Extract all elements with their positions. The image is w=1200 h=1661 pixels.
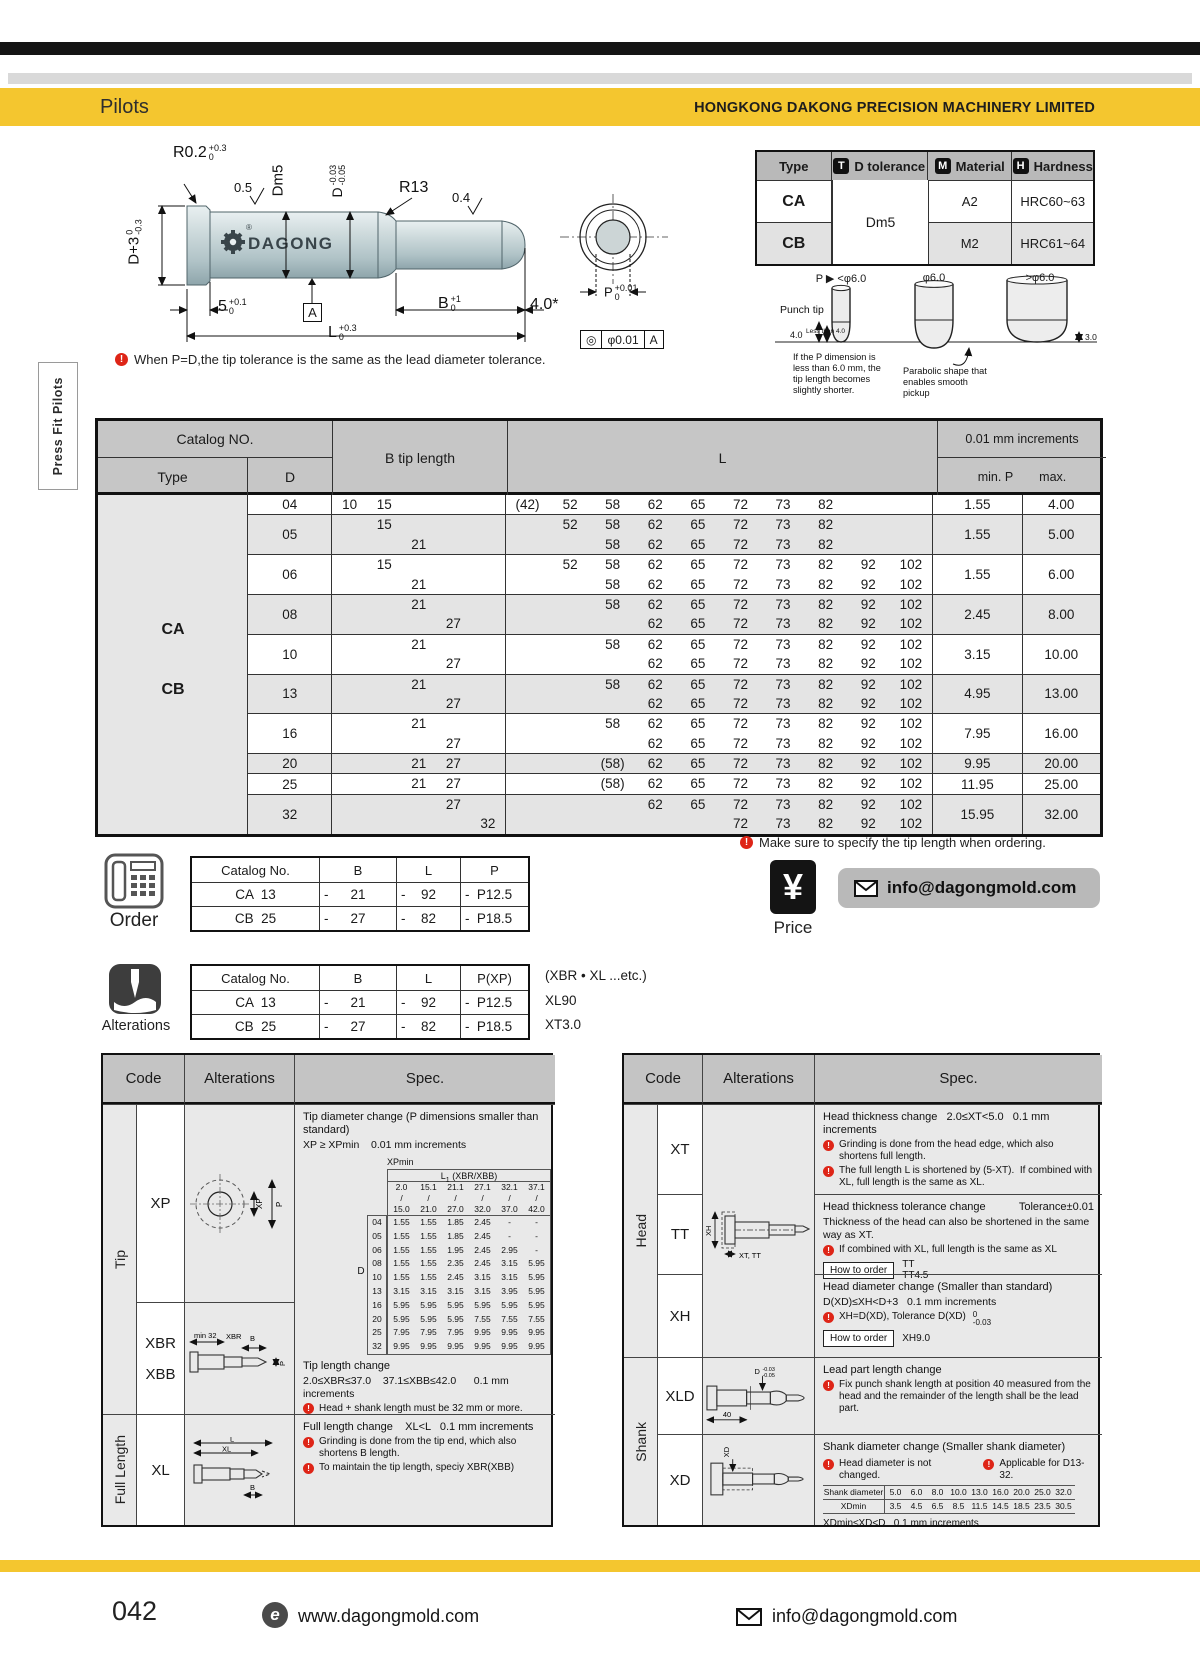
p-min-value: 2.45	[933, 595, 1022, 634]
l-value	[549, 814, 592, 833]
b-tip-lengths: 2127	[332, 774, 506, 793]
hardness-ca: HRC60~63	[1012, 181, 1093, 222]
l-value: 65	[677, 595, 720, 614]
l-value	[890, 495, 933, 514]
b-value	[332, 654, 367, 673]
b-value: 27	[436, 795, 471, 814]
l-value: 72	[719, 675, 762, 694]
l-value: 82	[804, 654, 847, 673]
b-value	[436, 535, 471, 554]
l-value	[506, 614, 549, 633]
xpmin-value: 9.95	[442, 1340, 469, 1354]
l-line: 58626572738292102	[506, 635, 932, 654]
l-value	[506, 694, 549, 713]
b-line: 32	[332, 814, 505, 833]
contact-email: info@dagongmold.com	[887, 878, 1076, 898]
l-value: 102	[890, 774, 933, 793]
l-value	[506, 714, 549, 733]
xpmin-value: 3.15	[442, 1285, 469, 1299]
b-value	[471, 535, 506, 554]
p-min-value: 9.95	[933, 754, 1022, 773]
p-max-value: 13.00	[1023, 675, 1100, 714]
b-value	[436, 635, 471, 654]
xpmin-value: 2.35	[442, 1257, 469, 1271]
l-value	[591, 795, 634, 814]
l-value: 102	[890, 814, 933, 833]
b-tip-lengths: 1015	[332, 495, 506, 514]
page-title: Pilots	[100, 96, 149, 119]
l-value: 58	[591, 515, 634, 534]
b-value	[332, 734, 367, 753]
punch-label-small: P ▶ <φ6.0	[816, 272, 867, 285]
range-slash: /	[427, 1193, 429, 1204]
xpmin-value: -	[523, 1216, 550, 1230]
b-value	[402, 555, 437, 574]
l-line: 58626572738292102	[506, 595, 932, 614]
xpmin-value: 1.55	[388, 1244, 415, 1258]
xpmin-value: 5.95	[388, 1313, 415, 1327]
b-value: 27	[436, 774, 471, 793]
b-value	[367, 614, 402, 633]
xpmin-range: 37.1/42.0	[523, 1182, 550, 1215]
tt-warning: If combined with XL, full length is the …	[823, 1244, 1094, 1256]
b-line: 2127	[332, 754, 505, 773]
xpmin-value: 7.55	[523, 1313, 550, 1327]
xp-diagram: XP P	[184, 1104, 294, 1302]
xd-value: 8.5	[948, 1500, 969, 1513]
b-line: 21	[332, 575, 505, 594]
pin-neck	[378, 212, 396, 278]
b-line: 27	[332, 694, 505, 713]
xpmin-value: 5.95	[496, 1299, 523, 1313]
l-value	[506, 555, 549, 574]
l-value: 62	[634, 555, 677, 574]
xpmin-value: 1.55	[388, 1257, 415, 1271]
l-value: 92	[847, 575, 890, 594]
xd-row-label: XDmin	[823, 1500, 885, 1513]
d-tolerance-header: TD tolerance	[832, 152, 928, 180]
d-value: 13	[248, 675, 332, 714]
b-line: 27	[332, 734, 505, 753]
registered-mark: ®	[246, 223, 252, 232]
b-value	[402, 515, 437, 534]
spec-header: Spec.	[814, 1055, 1102, 1104]
tip-length-order-note-text: Make sure to specify the tip length when…	[759, 835, 1046, 850]
l-value: 102	[890, 635, 933, 654]
l-value	[847, 515, 890, 534]
l-value: 92	[847, 795, 890, 814]
l-value: 73	[762, 714, 805, 733]
material-cb: M2	[928, 223, 1013, 264]
p-max-value: 10.00	[1023, 635, 1100, 674]
xpmin-value: 1.55	[415, 1230, 442, 1244]
drawing-note-text: When P=D,the tip tolerance is the same a…	[134, 352, 546, 367]
p-min-value: 3.15	[933, 635, 1022, 674]
l-value: 82	[804, 515, 847, 534]
b-value	[471, 495, 506, 514]
catalog-row-d06: 0615215258626572738292102586265727382921…	[248, 554, 1100, 594]
l-value: (58)	[591, 774, 634, 793]
tt-xh-label: XH	[705, 1226, 713, 1236]
l-value: 102	[890, 595, 933, 614]
p-min-value: 1.55	[933, 555, 1022, 594]
xpmin-row: 1.551.551.952.452.95-	[388, 1244, 550, 1258]
t-badge-icon: T	[833, 158, 849, 174]
alterations-example-2: XT3.0	[545, 1017, 581, 1032]
xd-rule: XDmin≤XD<D 0.1 mm increments	[823, 1517, 1094, 1530]
xl-diagram: L XL B	[184, 1414, 294, 1525]
l-value: 62	[634, 675, 677, 694]
l-value: 62	[634, 714, 677, 733]
increments-header: 0.01 mm increments	[938, 421, 1106, 458]
xpmin-id-column: 04050608101316202532	[367, 1215, 387, 1355]
l-value: 82	[804, 495, 847, 514]
l-value: 92	[847, 774, 890, 793]
b-value: 15	[367, 515, 402, 534]
l-value: 62	[634, 535, 677, 554]
xpmin-value: 9.95	[469, 1340, 496, 1354]
l-value: 65	[677, 754, 720, 773]
l-value: 73	[762, 614, 805, 633]
l-value: 102	[890, 675, 933, 694]
l-value	[506, 515, 549, 534]
order-b: 27	[350, 911, 365, 926]
range-slash: /	[481, 1193, 483, 1204]
xp-diagram-xp-label: XP	[255, 1198, 264, 1209]
l-value: 82	[804, 754, 847, 773]
p-min-value: 1.55	[933, 515, 1022, 554]
xpmin-row: 1.551.552.453.153.155.95	[388, 1271, 550, 1285]
xpmin-value: 9.95	[415, 1340, 442, 1354]
l-value: 92	[847, 614, 890, 633]
xpmin-value: 5.95	[442, 1313, 469, 1327]
p-min-value: 15.95	[933, 795, 1022, 834]
order-row-cb: CB 25 -27 -82 -P18.5	[192, 906, 528, 930]
hardness-cb: HRC61~64	[1012, 223, 1093, 264]
dim-p: P+0.010	[604, 284, 637, 302]
e-logo-icon: e	[262, 1602, 288, 1628]
p-max-value: 6.00	[1023, 555, 1100, 594]
b-tip-lengths: 1521	[332, 555, 506, 594]
b-value	[402, 694, 437, 713]
d-value: 25	[248, 774, 332, 793]
dim-d-plus-3: D+30-0.3	[126, 219, 144, 264]
l-value: (58)	[591, 754, 634, 773]
catalog-row-d32: 3227326265727382921027273829210215.9532.…	[248, 794, 1100, 834]
l-value: 62	[634, 795, 677, 814]
punch-dim-3: 3.0	[1085, 332, 1097, 343]
l-value	[549, 714, 592, 733]
l-line: 626572738292102	[506, 795, 932, 814]
order-example-table: Catalog No. B L P CA 13 -21 -92 -P12.5 C…	[190, 856, 530, 932]
l-value: 65	[677, 614, 720, 633]
xpmin-value: 5.95	[415, 1299, 442, 1313]
xd-value: 3.5	[885, 1500, 906, 1513]
b-value	[471, 714, 506, 733]
xpmin-row: 1.551.551.852.45--	[388, 1216, 550, 1230]
type-label-ca: CA	[98, 621, 248, 639]
b-value: 15	[367, 555, 402, 574]
dim-r02-base: R0.2	[173, 144, 207, 161]
d-value: 32	[248, 795, 332, 834]
p-max-value: 5.00	[1023, 515, 1100, 554]
l-value: 102	[890, 734, 933, 753]
b-line: 27	[332, 614, 505, 633]
xpmin-value: 1.55	[415, 1216, 442, 1230]
xpmin-value: 9.95	[496, 1340, 523, 1354]
dim-dm5: Dm5	[269, 165, 286, 197]
order-h-catalog: Catalog No.	[192, 858, 319, 882]
range-low: 32.1	[501, 1182, 518, 1193]
l-value: (42)	[506, 495, 549, 514]
xl-title: Full length change XL<L 0.1 mm increment…	[303, 1421, 547, 1434]
l-line: (58)626572738292102	[506, 774, 932, 793]
l-value: 72	[719, 555, 762, 574]
l-value: 62	[634, 694, 677, 713]
xpmin-d-value: 10	[368, 1271, 386, 1285]
l-value: 82	[804, 774, 847, 793]
l-value: 92	[847, 635, 890, 654]
xpmin-row: 9.959.959.959.959.959.95	[388, 1340, 550, 1354]
dim-r02-tol: +0.30	[209, 144, 227, 162]
d-value: 16	[248, 714, 332, 753]
range-high: 21.0	[420, 1204, 437, 1215]
type-table-header: Type TD tolerance MMaterial HHardness	[757, 152, 1093, 180]
material-ca: A2	[928, 181, 1013, 222]
l-value	[549, 575, 592, 594]
xd-value: 18.5	[1011, 1500, 1032, 1513]
range-low: 37.1	[528, 1182, 545, 1193]
xpmin-value: 5.95	[388, 1299, 415, 1313]
b-value	[436, 575, 471, 594]
l-value: 73	[762, 575, 805, 594]
main-catalog-table: Catalog NO. Type D B tip length L 0.01 m…	[95, 418, 1103, 837]
l-value	[506, 675, 549, 694]
tt-spec: Head thickness tolerance change Toleranc…	[814, 1194, 1102, 1274]
b-value	[332, 675, 367, 694]
company-name: HONGKONG DAKONG PRECISION MACHINERY LIMI…	[694, 100, 1095, 116]
xbr-title: Tip length change	[303, 1360, 547, 1373]
p-max-value: 8.00	[1023, 595, 1100, 634]
xd-value: 20.0	[1011, 1486, 1032, 1499]
l-value: 73	[762, 694, 805, 713]
xpmin-d-value: 25	[368, 1326, 386, 1340]
catalog-page: Pilots HONGKONG DAKONG PRECISION MACHINE…	[0, 0, 1200, 1661]
b-value	[436, 595, 471, 614]
xd-warning-1: Head diameter is not changed.	[823, 1458, 969, 1482]
xld-d-label: D	[755, 1367, 760, 1376]
b-value: 21	[402, 754, 437, 773]
l-value: 92	[847, 654, 890, 673]
l-value: 65	[677, 795, 720, 814]
b-line: 21	[332, 714, 505, 733]
xd-label: XD	[722, 1447, 731, 1457]
xpmin-value: 9.95	[388, 1340, 415, 1354]
l-lengths: 58626572738292102626572738292102	[506, 714, 933, 753]
group-full-length: Full Length	[103, 1414, 136, 1525]
l-lengths: 58626572738292102626572738292102	[506, 635, 933, 674]
l-value: 58	[591, 675, 634, 694]
xld-warning: Fix punch shank length at position 40 me…	[823, 1379, 1094, 1415]
b-col-header: B tip length	[333, 421, 508, 495]
l-value: 52	[549, 515, 592, 534]
dim-finish-05: 0.5	[234, 180, 252, 195]
catalog-row-d08: 082127586265727382921026265727382921022.…	[248, 594, 1100, 634]
b-value: 21	[402, 635, 437, 654]
l-value: 58	[591, 575, 634, 594]
l-value	[549, 734, 592, 753]
xpmin-value: 7.55	[496, 1313, 523, 1327]
dim-r02: R0.2+0.30	[173, 144, 227, 162]
l-value	[506, 754, 549, 773]
concentricity-icon: ◎	[581, 331, 602, 348]
l-value: 72	[719, 635, 762, 654]
footer-band	[0, 1560, 1200, 1572]
type-col-header: Type	[98, 458, 248, 495]
price-icon: ¥	[770, 860, 816, 914]
xd-title: Shank diameter change (Smaller shank dia…	[823, 1441, 1094, 1454]
xpmin-d-value: 32	[368, 1340, 386, 1354]
xd-value: 13.0	[969, 1486, 990, 1499]
b-value	[471, 795, 506, 814]
xld-spec: Lead part length change Fix punch shank …	[814, 1357, 1102, 1434]
spec-header: Spec.	[294, 1055, 555, 1104]
xpmin-value: 2.45	[469, 1244, 496, 1258]
l-value	[506, 635, 549, 654]
l-value: 92	[847, 595, 890, 614]
b-value	[471, 595, 506, 614]
b-value: 32	[471, 814, 506, 833]
l-value: 92	[847, 555, 890, 574]
b-value	[471, 555, 506, 574]
xpmin-range: 15.1/21.0	[415, 1182, 442, 1215]
xh-order-example: XH9.0	[902, 1333, 930, 1344]
catalog-row-d04: 041015(42)525862657273821.554.00	[248, 495, 1100, 514]
l-value: 62	[634, 495, 677, 514]
b-value	[471, 774, 506, 793]
xpmin-value: 2.45	[469, 1216, 496, 1230]
xbr-label: XBR	[226, 1332, 242, 1341]
l-line: 626572738292102	[506, 654, 932, 673]
l-value	[890, 535, 933, 554]
l-value: 102	[890, 694, 933, 713]
l-value: 102	[890, 555, 933, 574]
code-xt: XT	[657, 1104, 702, 1194]
b-value: 21	[402, 774, 437, 793]
l-line: 5258626572738292102	[506, 555, 932, 574]
l-value: 65	[677, 515, 720, 534]
catalog-row-d13: 132127586265727382921026265727382921024.…	[248, 674, 1100, 714]
l-value: 62	[634, 754, 677, 773]
main-table-header: Catalog NO. Type D B tip length L 0.01 m…	[98, 421, 1100, 495]
side-tab-press-fit-pilots: Press Fit Pilots	[38, 362, 78, 490]
alterations-header: Alterations	[184, 1055, 294, 1104]
xh-how-to-order: How to order	[823, 1330, 894, 1347]
tip-diameter-circle	[596, 220, 630, 254]
xpmin-row: 7.957.957.959.959.959.95	[388, 1326, 550, 1340]
punch-less-than-4: Less than 4.0	[806, 326, 845, 337]
max-label: max.	[1039, 470, 1066, 484]
l-value	[549, 595, 592, 614]
type-column: CA CB	[98, 495, 248, 834]
xpmin-value: 5.95	[523, 1271, 550, 1285]
b-value	[332, 555, 367, 574]
xpmin-value: 1.55	[415, 1271, 442, 1285]
pin-tip	[502, 221, 525, 269]
b-value: 21	[402, 714, 437, 733]
xpmin-value: 2.45	[469, 1257, 496, 1271]
xpmin-value: 1.55	[415, 1244, 442, 1258]
p-min-value: 11.95	[933, 774, 1022, 793]
b-value	[367, 795, 402, 814]
l-value: 62	[634, 654, 677, 673]
range-low: 2.0	[396, 1182, 408, 1193]
xpmin-caption: XPmin	[387, 1156, 555, 1169]
l-value: 102	[890, 654, 933, 673]
l-value: 102	[890, 714, 933, 733]
l-value: 82	[804, 595, 847, 614]
xpmin-row: 1.551.551.852.45--	[388, 1230, 550, 1244]
b-value: 10	[332, 495, 367, 514]
xpmin-value: -	[523, 1230, 550, 1244]
xpmin-row: 5.955.955.957.557.557.55	[388, 1313, 550, 1327]
alterations-label: Alterations	[88, 1018, 184, 1034]
l-value: 62	[634, 515, 677, 534]
xl-l-label: L	[230, 1437, 234, 1444]
punch-tip-label: Punch tip	[780, 305, 824, 316]
code-xh: XH	[657, 1274, 702, 1357]
l-value: 72	[719, 614, 762, 633]
b-tip-lengths: 2732	[332, 795, 506, 834]
xpmin-value: 9.95	[523, 1340, 550, 1354]
l-value: 72	[719, 814, 762, 833]
xpmin-value: -	[496, 1230, 523, 1244]
xpmin-value: 3.15	[415, 1285, 442, 1299]
b-value: 27	[436, 734, 471, 753]
l-value: 58	[591, 535, 634, 554]
l-value: 52	[549, 495, 592, 514]
b-value	[332, 754, 367, 773]
l-value	[847, 535, 890, 554]
xpmin-value: 9.95	[496, 1326, 523, 1340]
side-tab-label: Press Fit Pilots	[51, 377, 65, 475]
l-line: 72738292102	[506, 814, 932, 833]
l-value: 62	[634, 734, 677, 753]
d-col-header: D	[248, 458, 333, 495]
catalog-row-d20: 202127(58)6265727382921029.9520.00	[248, 753, 1100, 773]
l-value	[549, 614, 592, 633]
b-line: 21	[332, 675, 505, 694]
range-high: 15.0	[393, 1204, 410, 1215]
xpmin-value: 1.55	[415, 1257, 442, 1271]
xd-min-table: Shank diameter5.06.08.010.013.016.020.02…	[823, 1485, 1075, 1514]
xpmin-ranges: 2.0/15.015.1/21.021.1/27.027.1/32.032.1/…	[388, 1182, 550, 1216]
xd-value: 6.5	[927, 1500, 948, 1513]
b-value	[402, 614, 437, 633]
xpmin-value: 3.15	[496, 1257, 523, 1271]
l-line: 626572738292102	[506, 614, 932, 633]
fax-icon	[104, 853, 164, 909]
range-high: 37.0	[501, 1204, 518, 1215]
b-value	[402, 734, 437, 753]
xp-diagram-p-label: P	[275, 1201, 284, 1206]
l-value: 73	[762, 734, 805, 753]
l-value: 82	[804, 535, 847, 554]
b-line: 2127	[332, 774, 505, 793]
b-value	[471, 754, 506, 773]
l-line: 58626572738292102	[506, 714, 932, 733]
xd-diagram: XD	[702, 1434, 814, 1525]
